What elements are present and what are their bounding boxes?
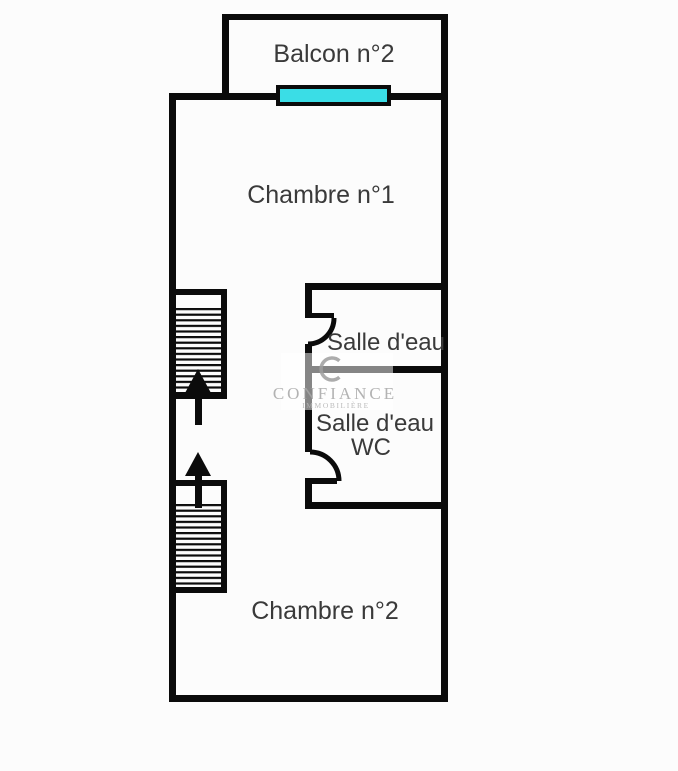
bathroom-wall-left-upper [305, 283, 312, 316]
room-label-shower-room-wc-line2: WC [351, 434, 391, 461]
staircase-lower-wall-bottom [176, 587, 227, 593]
bathroom-wall-top [305, 283, 448, 290]
wc-wall-bottom [305, 502, 448, 509]
staircase-lower-treads-icon [176, 503, 221, 587]
floor-plan-drawing: Balcon n°2 Chambre n°1 Salle d'eau Salle… [0, 0, 678, 771]
door-leaf-lower [305, 478, 337, 484]
exterior-wall-right [441, 93, 448, 702]
room-label-bedroom-1: Chambre n°1 [247, 181, 395, 209]
staircase-lower-wall-right [221, 480, 227, 593]
staircase-upper-wall-top [176, 289, 227, 295]
watermark-subtitle: IMMOBILIÈRE [302, 400, 370, 410]
exterior-wall-bottom [169, 695, 448, 702]
window [278, 87, 389, 104]
balcony-wall-right [441, 14, 448, 93]
watermark: CONFIANCE IMMOBILIÈRE [273, 353, 397, 410]
floor-plan-page: Balcon n°2 Chambre n°1 Salle d'eau Salle… [0, 0, 678, 771]
exterior-wall-left [169, 93, 176, 702]
door-leaf-upper [305, 313, 334, 318]
room-label-bedroom-2: Chambre n°2 [251, 597, 399, 625]
staircase-upper-wall-right [221, 289, 227, 399]
balcony-wall-top [222, 14, 448, 20]
room-label-shower-room: Salle d'eau [327, 329, 445, 356]
balcony-wall-left [222, 14, 229, 93]
room-label-shower-room-wc-line1: Salle d'eau [316, 410, 434, 437]
room-label-balcony: Balcon n°2 [273, 40, 394, 68]
wc-wall-left-lower [305, 484, 312, 502]
